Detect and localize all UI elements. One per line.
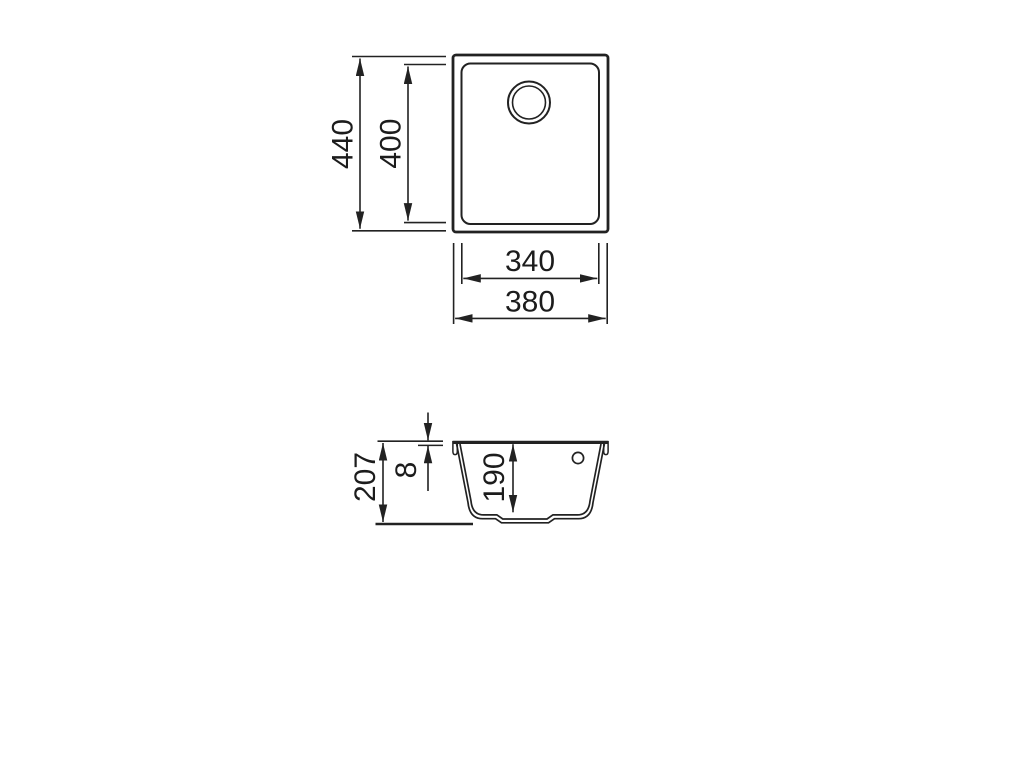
dimension-rim-thickness: 8 bbox=[390, 413, 443, 492]
overflow-hole bbox=[572, 452, 583, 463]
dimension-label-overall-depth: 207 bbox=[349, 452, 382, 502]
sink-bowl-outline bbox=[462, 64, 600, 225]
drain-hole-inner-ring bbox=[513, 86, 546, 119]
dimension-label-overall-height: 440 bbox=[327, 119, 360, 169]
dimension-bowl-height: 400 bbox=[375, 65, 447, 223]
top-view bbox=[453, 55, 608, 232]
dimension-label-overall-width: 380 bbox=[505, 286, 555, 319]
dimension-label-bowl-height: 400 bbox=[375, 119, 408, 169]
dimension-label-rim-thickness: 8 bbox=[390, 462, 423, 479]
drain-hole-outer-ring bbox=[508, 82, 550, 124]
drawing-canvas: 440 400 340 380 bbox=[0, 0, 1024, 768]
dimension-bowl-width: 340 bbox=[462, 243, 599, 284]
dimension-label-bowl-depth: 190 bbox=[478, 452, 511, 502]
dimension-overall-depth: 207 bbox=[349, 441, 473, 524]
dimension-label-bowl-width: 340 bbox=[505, 245, 555, 278]
sink-technical-drawing: 440 400 340 380 bbox=[0, 0, 1024, 768]
section-view bbox=[453, 441, 609, 523]
dimension-bowl-depth: 190 bbox=[478, 444, 513, 512]
